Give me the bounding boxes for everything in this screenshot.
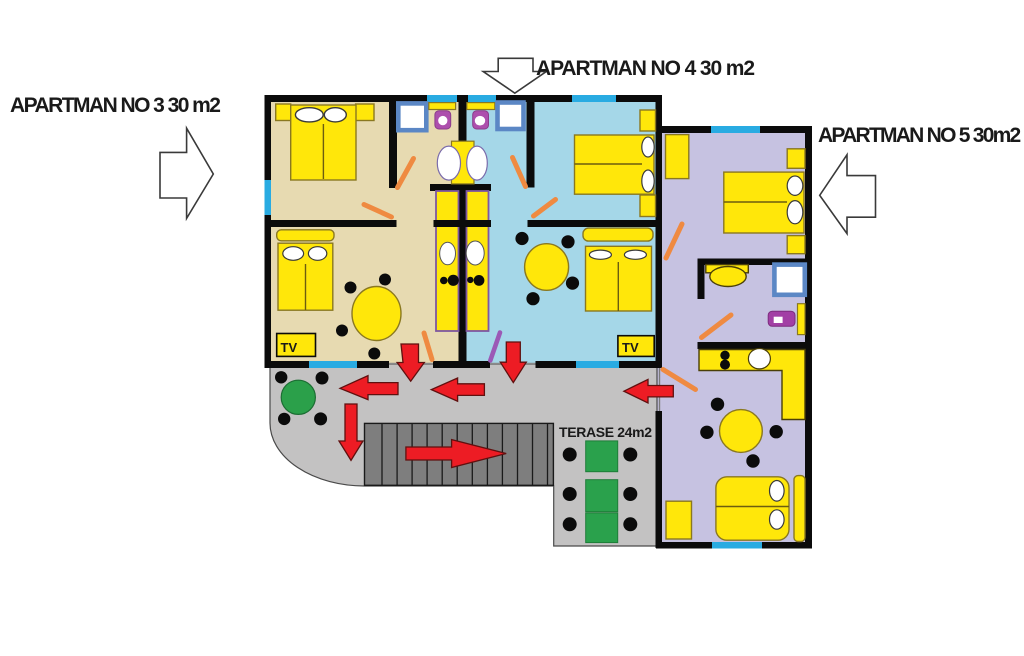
- svg-text:TV: TV: [622, 340, 639, 355]
- svg-text:APARTMAN NO 5 30m2: APARTMAN NO 5 30m2: [818, 124, 1021, 147]
- svg-text:TERASE 24m2: TERASE 24m2: [559, 424, 652, 440]
- svg-text:APARTMAN NO 3 30 m2: APARTMAN NO 3 30 m2: [10, 94, 220, 117]
- svg-text:APARTMAN NO 4 30 m2: APARTMAN NO 4 30 m2: [536, 57, 754, 80]
- svg-text:TV: TV: [281, 340, 298, 355]
